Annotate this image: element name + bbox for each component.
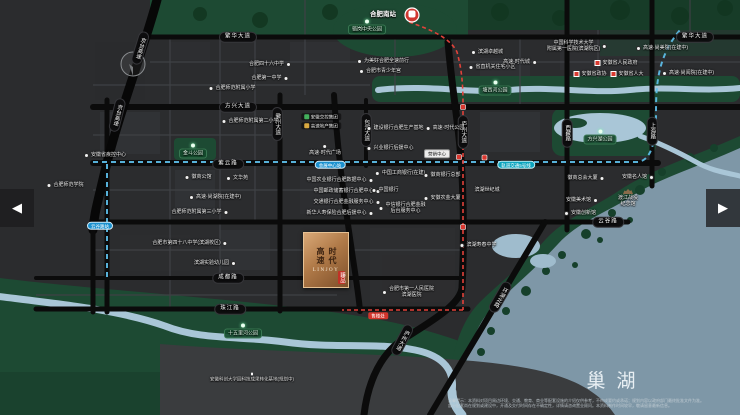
park-dot-icon [598, 130, 602, 134]
poi-marker-icon [423, 173, 428, 178]
label-text: 徽商公馆 [191, 174, 211, 180]
label-text: 繁华大道 [682, 34, 708, 41]
label-text: 京台高速 [134, 37, 147, 60]
label-text: 文华苑 [233, 175, 248, 181]
poi-label: 交通银行合肥金融服务中心 [313, 199, 380, 205]
government-marker-icon [610, 71, 616, 77]
label-text: 合肥第一中学 [251, 75, 281, 81]
poi-marker-icon [221, 119, 226, 124]
poi-marker-icon [224, 210, 229, 215]
label-text: 云谷路 [598, 219, 618, 226]
label-text: 新华人寿保险合肥后援中心 [306, 210, 366, 216]
label-text: 珠江路 [220, 306, 240, 313]
poi-label: 合肥师范附属第三小学 [171, 209, 228, 215]
label-text: 安徽名人馆 [622, 174, 647, 180]
park-label: 金斗公园 [179, 144, 207, 159]
label-text: 兴业银行后援中心 [373, 145, 413, 151]
label-text: 徽商银行总部 [430, 172, 460, 178]
metro-line-label: 轨道交通5号线 [497, 161, 535, 169]
poi-marker-icon [662, 71, 667, 76]
label-text: 繁华大道 [225, 34, 251, 41]
government-marker-icon [594, 60, 600, 66]
label-text: 安徽省人民政府 [602, 60, 637, 66]
label-text: 营销中心 [428, 151, 446, 156]
poi-marker-icon [184, 175, 189, 180]
poi-label: 安徽省疾控中心 [84, 152, 126, 158]
poi-label: 安徽名人馆 [622, 174, 654, 180]
label-text: 滨湖世纪城 [474, 187, 499, 193]
label-text: 合肥市青少年宫 [366, 68, 401, 74]
road-capsule: 庐州大道 [458, 115, 469, 149]
label-text: 安徽交控集团 [311, 114, 338, 119]
label-text: 中国银行 [378, 187, 398, 193]
label-text: 轨道交通5号线 [501, 162, 531, 167]
park-dot-icon [191, 144, 195, 148]
poi-marker-icon [369, 178, 374, 183]
logo-column-2: 时代 [328, 247, 336, 265]
label-text: 高速·时代广场 [309, 150, 341, 156]
poi-label: 合肥市青少年宫 [359, 68, 401, 74]
poi-marker-icon [426, 126, 431, 131]
label-text: 安徽农金大厦 [430, 195, 460, 201]
label-text: 建设银行合肥生产基地 [373, 125, 423, 131]
poi-marker-icon [468, 65, 473, 70]
right-arrow-icon: ▶ [718, 200, 728, 216]
poi-marker-icon [459, 243, 464, 248]
poi-marker-icon [366, 126, 371, 131]
park-label: 方兴湖公园 [583, 130, 616, 145]
label-text: 塘西河公园 [482, 88, 507, 94]
road-capsule: 繁华大道 [676, 32, 714, 43]
poi-marker-icon [371, 188, 376, 193]
label-text: 滨湖寿春中学 [466, 242, 496, 248]
poi-label: 渡江战役纪念馆 [618, 189, 638, 207]
label-layer: 繁华大道繁华大道方兴大道紫云路云谷路成都路珠江路徽州大道包河大道庐州大道西藏路上… [0, 0, 740, 415]
next-image-button[interactable]: ▶ [706, 189, 740, 227]
park-dot-icon [493, 81, 497, 85]
label-text: 高速·时代城 [503, 59, 530, 65]
poi-label: 安徽农金大厦 [423, 195, 460, 201]
label-text: 骆岗中央公园 [352, 27, 382, 33]
label-text: 合肥四十六中学 [249, 61, 284, 67]
label-text: 安徽创新馆 [571, 210, 596, 216]
label-text: 安徽省政协 [581, 71, 606, 77]
poi-marker-icon [423, 196, 428, 201]
label-text: 徽商总会大厦 [567, 175, 597, 181]
poi-label: 兴业银行后援中心 [366, 145, 413, 151]
previous-image-button[interactable]: ◀ [0, 189, 34, 227]
road-capsule: 京台高速 [130, 30, 150, 66]
station-name-label: 合肥南站 [370, 11, 396, 19]
label-text: 为美好合肥全速前行 [364, 58, 409, 64]
park-name: 塘西河公园 [478, 86, 511, 96]
poi-marker-icon [636, 46, 641, 51]
poi-label: 合肥第一中学 [251, 75, 288, 81]
poi-marker-icon [189, 195, 194, 200]
poi-marker-icon [600, 176, 605, 181]
road-capsule: 西藏路 [562, 119, 573, 148]
label-text: 安徽省人大 [618, 71, 643, 77]
poi-marker-icon [284, 76, 289, 81]
poi-label: 为美好合肥全速前行 [357, 58, 409, 64]
road-capsule: 上海路 [647, 117, 658, 146]
project-logo-characters: 高速 时代 [316, 247, 336, 265]
poi-label: 高速·尚美院(在建中) [636, 45, 688, 51]
poi-label: 建设银行合肥生产基地 [366, 125, 423, 131]
park-name: 骆岗中央公园 [348, 25, 386, 35]
poi-marker-icon [46, 183, 51, 188]
park-label: 骆岗中央公园 [348, 20, 386, 35]
road-capsule: 环湖北路 [487, 280, 513, 315]
label-text: 渡江战役纪念馆 [618, 195, 638, 207]
road-capsule: 庐州大道 [389, 323, 414, 358]
poi-label: 徽商银行总部 [423, 172, 460, 178]
government-label: 安徽省政协 [573, 71, 606, 77]
road-capsule: 京台高速 [108, 97, 127, 133]
road-capsule: 成都路 [212, 273, 244, 284]
label-text: 成都路 [218, 275, 238, 282]
poi-label: 高速·时代广场 [309, 144, 341, 156]
label-text: 合肥师范学院 [53, 182, 83, 188]
label-text: 京台高速 [111, 104, 123, 127]
label-text: 会展中心站 [319, 162, 342, 167]
label-text: 紫云路 [218, 161, 238, 168]
label-text: 安徽省疾控中心 [91, 152, 126, 158]
poi-marker-icon [382, 290, 387, 295]
poi-label: 滨湖卓越城 [471, 49, 503, 55]
poi-label: 中国邮政储蓄银行合肥中心 [313, 188, 380, 194]
label-text: 安徽美术馆 [566, 197, 591, 203]
poi-label: 中国农业银行合肥数据中心 [306, 177, 373, 183]
poi-marker-icon [471, 50, 476, 55]
brand-logo-icon [304, 115, 309, 120]
poi-label: 新华人寿保险合肥后援中心 [306, 210, 373, 216]
label-text: 中国农业银行合肥数据中心 [306, 177, 366, 183]
road-capsule: 云谷路 [592, 217, 624, 228]
disclaimer-line-2: 部分配套尚在规划或建设中，开通及交付时间存在不确定性，详情请咨询置业顾问。本资料… [448, 403, 738, 408]
label-text: 中信银行合肥金融后台服务中心 [385, 202, 425, 214]
left-arrow-icon: ◀ [12, 200, 22, 216]
label-text: 合肥师范附属第二小学 [228, 118, 278, 124]
poi-label: 滨湖世纪城 [474, 187, 499, 193]
road-capsule: 繁华大道 [219, 32, 257, 43]
label-text: 云谷路站 [91, 223, 109, 228]
poi-label: 合肥四十六中学 [249, 61, 291, 67]
logo-column-1: 高速 [316, 247, 324, 265]
label-text: 滨湖卓越城 [478, 49, 503, 55]
poi-marker-icon [226, 176, 231, 181]
government-label: 安徽省人民政府 [594, 60, 637, 66]
park-name: 十五里河公园 [224, 329, 262, 339]
road-capsule: 紫云路 [212, 159, 244, 170]
poi-label: 合肥师范附属第二小学 [221, 118, 278, 124]
poi-label: 中信银行合肥金融后台服务中心 [378, 202, 425, 214]
poi-label: 中国工商银行(在建) [375, 170, 425, 176]
poi-marker-icon [366, 146, 371, 151]
government-marker-icon [573, 71, 579, 77]
poi-label: 安徽创新馆 [564, 210, 596, 216]
brand-logo-icon [304, 124, 309, 129]
poi-label: 合肥市第一人民医院滨湖医院 [382, 286, 434, 298]
label-text: 高速·尚湖院(在建中) [196, 194, 241, 200]
park-name: 金斗公园 [179, 149, 207, 159]
poi-marker-icon [84, 153, 89, 158]
park-label: 十五里河公园 [224, 324, 262, 339]
poi-marker-icon [593, 198, 598, 203]
park-label: 塘西河公园 [478, 81, 511, 96]
brand-logo: 安徽交控集团 [301, 113, 341, 120]
metro-station-badge: 云谷路站 [87, 222, 113, 230]
poi-label: 高速·尚湖院(在建中) [189, 194, 241, 200]
poi-marker-icon [602, 44, 607, 49]
poi-marker-icon [286, 62, 291, 67]
metro-station-badge: 会展中心站 [315, 161, 346, 169]
government-label: 安徽省人大 [610, 71, 643, 77]
label-text: 高速·尚阅院(在建中) [669, 70, 714, 76]
label-text: 庐州大道 [394, 329, 410, 352]
label-text: 合肥师范附属第三小学 [171, 209, 221, 215]
label-text: 中国邮政储蓄银行合肥中心 [313, 188, 373, 194]
poi-marker-icon [375, 171, 380, 176]
poi-marker-icon [564, 211, 569, 216]
label-text: 环湖北路 [492, 286, 509, 308]
marketing-center-tag: 营销中心 [424, 149, 450, 158]
poi-marker-icon [378, 206, 383, 211]
label-text: 合肥师范附属小学 [215, 85, 255, 91]
label-text: 高速地产集团 [311, 123, 338, 128]
park-name: 方兴湖公园 [583, 135, 616, 145]
poi-label: 滨湖实验幼儿园 [194, 260, 236, 266]
poi-label: 中国科学技术大学附属第一医院(滨湖院区) [547, 40, 607, 52]
label-text: 合肥市第一人民医院滨湖医院 [389, 286, 434, 298]
location-map: 繁华大道繁华大道方兴大道紫云路云谷路成都路珠江路徽州大道包河大道庐州大道西藏路上… [0, 0, 740, 415]
poi-label: 中国银行 [371, 187, 398, 193]
park-dot-icon [365, 20, 369, 24]
label-text: 合肥南站 [370, 11, 396, 19]
facility-label: 安徽科创大学园科技成果转化基地(规划中) [210, 373, 294, 382]
road-capsule: 方兴大道 [219, 102, 257, 113]
label-text: 售楼处 [371, 313, 385, 318]
poi-label: 合肥师范附属小学 [208, 85, 255, 91]
poi-label: 安徽美术馆 [566, 197, 598, 203]
road-capsule: 徽州大道 [272, 107, 283, 141]
poi-label: 高速·时代公园 [426, 125, 465, 131]
label-text: 滨湖实验幼儿园 [194, 260, 229, 266]
label-text: 合肥市第四十八中学(滨湖校区) [152, 240, 220, 246]
label-text: 方兴湖公园 [587, 137, 612, 143]
label-text: 高速·时代公园 [433, 125, 465, 131]
poi-label: 滨湖寿春中学 [459, 242, 496, 248]
label-text: 徽州大道 [274, 113, 281, 135]
map-disclaimer: 温馨提示：本资料对项目周边环境、交通、教育、商业等配套设施的介绍仅供参考，不构成… [448, 398, 738, 409]
poi-label: 徽商公馆 [184, 174, 211, 180]
poi-marker-icon [208, 86, 213, 91]
poi-marker-icon [359, 69, 364, 74]
project-logo-seal: 臻品 [338, 271, 346, 284]
park-dot-icon [241, 324, 245, 328]
project-logo: 高速 时代 LINJOY 臻品 [303, 232, 349, 288]
poi-label: 徽商总会大厦 [567, 175, 604, 181]
label-text: 中国工商银行(在建) [382, 170, 425, 176]
poi-marker-icon [649, 175, 654, 180]
label-text: 中国科学技术大学附属第一医院(滨湖院区) [547, 40, 600, 52]
poi-marker-icon [231, 261, 236, 266]
poi-marker-icon [223, 241, 228, 246]
project-logo-english: LINJOY [313, 268, 340, 273]
label-text: 金斗公园 [183, 151, 203, 157]
sales-office-tag: 售楼处 [368, 312, 388, 319]
building-icon [623, 189, 633, 194]
label-text: 十五里河公园 [228, 331, 258, 337]
label-text: 安徽科创大学园科技成果转化基地(规划中) [210, 376, 294, 381]
label-text: 上海路 [649, 123, 656, 140]
road-capsule: 珠江路 [214, 304, 246, 315]
label-text: 高速·尚美院(在建中) [643, 45, 688, 51]
label-text: 西藏路 [564, 125, 571, 142]
label-text: 交通银行合肥金融服务中心 [313, 199, 373, 205]
poi-label: 高速·时代城 [503, 59, 537, 65]
poi-marker-icon [532, 60, 537, 65]
poi-marker-icon [322, 144, 327, 149]
label-text: 方兴大道 [225, 104, 251, 111]
poi-label: 文华苑 [226, 175, 248, 181]
poi-label: 合肥市第四十八中学(滨湖校区) [152, 240, 227, 246]
poi-marker-icon [369, 211, 374, 216]
facility-dot-icon [251, 373, 254, 376]
brand-logo: 高速地产集团 [301, 122, 341, 129]
poi-marker-icon [357, 59, 362, 64]
poi-label: 合肥师范学院 [46, 182, 83, 188]
poi-label: 高速·尚阅院(在建中) [662, 70, 714, 76]
